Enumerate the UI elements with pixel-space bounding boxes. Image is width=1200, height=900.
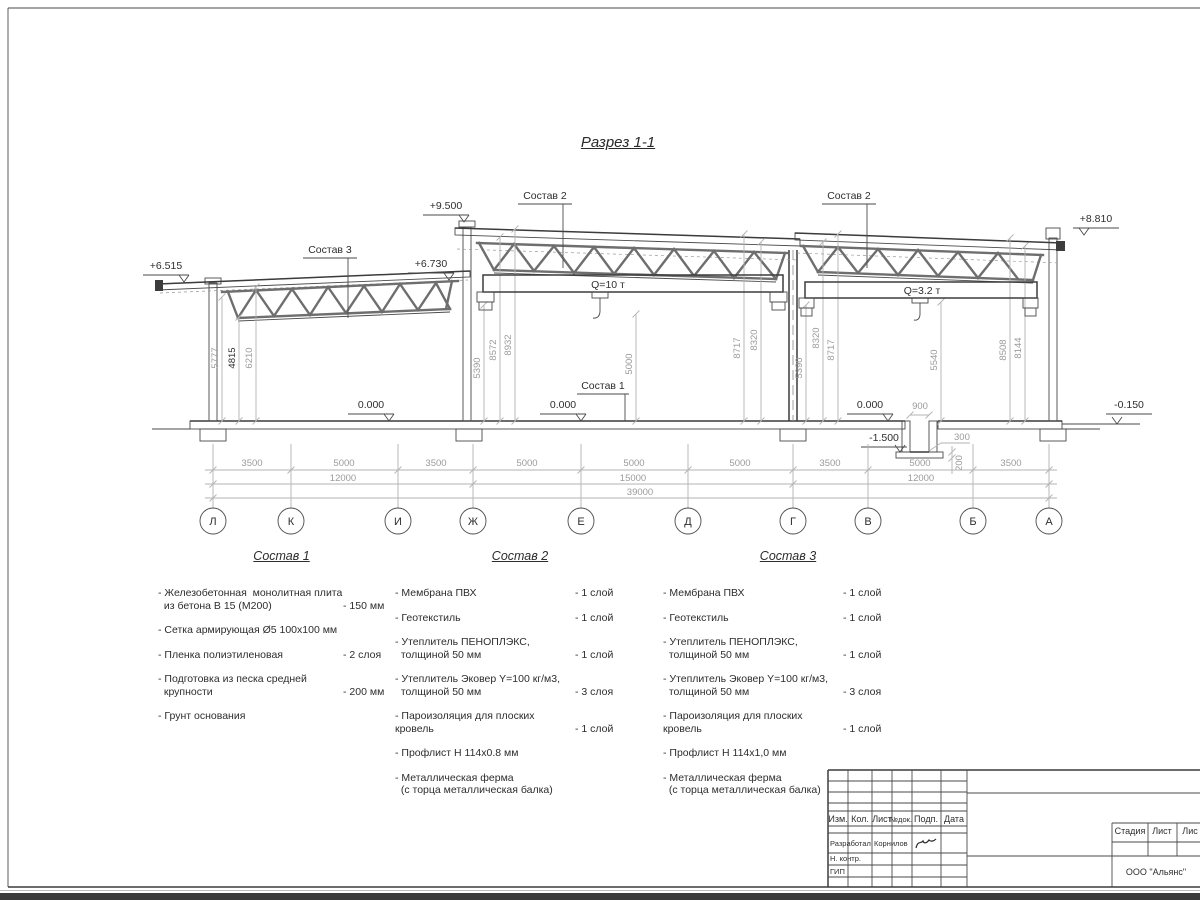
drawing-sheet: 5777481562105390857289325000871783205390…	[0, 0, 1200, 900]
material-name: - Утеплитель Эковер Y=100 кг/м3, толщино…	[663, 673, 843, 698]
composition-block: Состав 3- Мембрана ПВХ- 1 слой- Геотекст…	[663, 549, 913, 809]
composition-item: - Утеплитель Эковер Y=100 кг/м3, толщино…	[395, 673, 645, 698]
composition-item: - Утеплитель Эковер Y=100 кг/м3, толщино…	[663, 673, 913, 698]
material-name: - Утеплитель ПЕНОПЛЭКС, толщиной 50 мм	[395, 636, 575, 661]
material-quantity: - 1 слой	[575, 723, 645, 736]
material-name: - Пароизоляция для плоских кровель	[663, 710, 843, 735]
composition-item: - Сетка армирующая Ø5 100x100 мм	[158, 624, 405, 637]
material-name: - Профлист Н 114х0.8 мм	[395, 747, 575, 760]
composition-item: - Профлист Н 114х0.8 мм	[395, 747, 645, 760]
material-quantity: - 3 слоя	[843, 686, 913, 699]
composition-item: - Геотекстиль- 1 слой	[395, 612, 645, 625]
material-name: - Мембрана ПВХ	[663, 587, 843, 600]
composition-item: - Утеплитель ПЕНОПЛЭКС, толщиной 50 мм- …	[395, 636, 645, 661]
material-quantity: - 1 слой	[843, 587, 913, 600]
material-name: - Пленка полиэтиленовая	[158, 649, 343, 662]
material-name: - Грунт основания	[158, 710, 343, 723]
material-name: - Геотекстиль	[663, 612, 843, 625]
composition-item: - Геотекстиль- 1 слой	[663, 612, 913, 625]
composition-item: - Профлист Н 114х1,0 мм	[663, 747, 913, 760]
composition-item: - Мембрана ПВХ- 1 слой	[395, 587, 645, 600]
material-name: - Утеплитель ПЕНОПЛЭКС, толщиной 50 мм	[663, 636, 843, 661]
composition-item: - Пароизоляция для плоских кровель- 1 сл…	[395, 710, 645, 735]
material-name: - Металлическая ферма (с торца металличе…	[663, 772, 843, 797]
composition-item: - Грунт основания	[158, 710, 405, 723]
material-name: - Профлист Н 114х1,0 мм	[663, 747, 843, 760]
composition-block: Состав 1- Железобетонная монолитная плит…	[158, 549, 405, 735]
material-name: - Мембрана ПВХ	[395, 587, 575, 600]
composition-item: - Мембрана ПВХ- 1 слой	[663, 587, 913, 600]
material-quantity: - 1 слой	[575, 587, 645, 600]
composition-item: - Подготовка из песка средней крупности-…	[158, 673, 405, 698]
composition-item: - Металлическая ферма (с торца металличе…	[663, 772, 913, 797]
composition-title: Состав 1	[158, 549, 405, 563]
material-name: - Металлическая ферма (с торца металличе…	[395, 772, 575, 797]
material-name: - Утеплитель Эковер Y=100 кг/м3, толщино…	[395, 673, 575, 698]
composition-item: - Пароизоляция для плоских кровель- 1 сл…	[663, 710, 913, 735]
material-quantity: - 1 слой	[843, 723, 913, 736]
composition-title: Состав 2	[395, 549, 645, 563]
composition-block: Состав 2- Мембрана ПВХ- 1 слой- Геотекст…	[395, 549, 645, 809]
material-quantity: - 1 слой	[843, 649, 913, 662]
material-quantity: - 3 слоя	[575, 686, 645, 699]
composition-item: - Металлическая ферма (с торца металличе…	[395, 772, 645, 797]
material-quantity: - 1 слой	[575, 649, 645, 662]
material-name: - Подготовка из песка средней крупности	[158, 673, 343, 698]
composition-item: - Утеплитель ПЕНОПЛЭКС, толщиной 50 мм- …	[663, 636, 913, 661]
composition-title: Состав 3	[663, 549, 913, 563]
material-name: - Пароизоляция для плоских кровель	[395, 710, 575, 735]
composition-lists: Состав 1- Железобетонная монолитная плит…	[0, 0, 1200, 900]
material-name: - Сетка армирующая Ø5 100x100 мм	[158, 624, 343, 637]
material-quantity: - 1 слой	[843, 612, 913, 625]
composition-item: - Железобетонная монолитная плита из бет…	[158, 587, 405, 612]
material-name: - Железобетонная монолитная плита из бет…	[158, 587, 343, 612]
composition-item: - Пленка полиэтиленовая- 2 слоя	[158, 649, 405, 662]
material-name: - Геотекстиль	[395, 612, 575, 625]
material-quantity: - 1 слой	[575, 612, 645, 625]
